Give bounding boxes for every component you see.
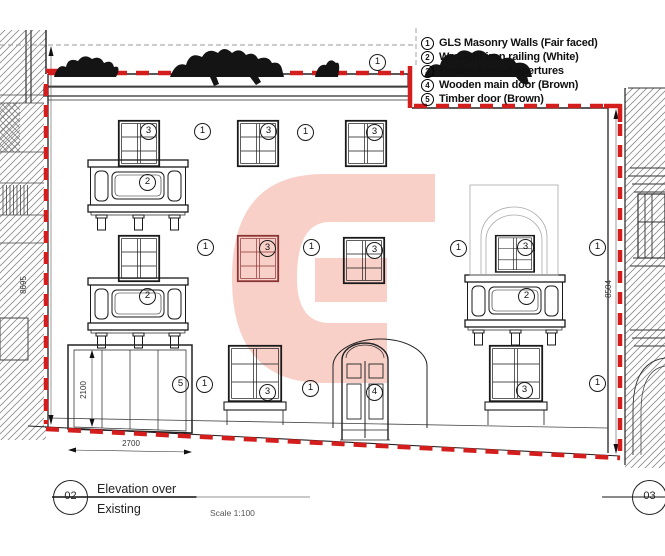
callout-marker: 1: [302, 380, 319, 397]
dimension-garage-height: 2100: [79, 381, 88, 399]
callout-marker: 1: [450, 240, 467, 257]
legend-item: 1GLS Masonry Walls (Fair faced): [421, 36, 598, 50]
callout-marker: 1: [196, 376, 213, 393]
callout-marker: 1: [589, 239, 606, 256]
title-divider: [52, 496, 310, 498]
callout-marker: 1: [589, 375, 606, 392]
legend-items: 1GLS Masonry Walls (Fair faced)2Wrought …: [421, 36, 598, 106]
callout-marker: 3: [516, 382, 533, 399]
callout-marker: 1: [297, 124, 314, 141]
callout-marker: 4: [366, 384, 383, 401]
circled-number-icon: 5: [421, 93, 434, 106]
dimension-garage-width: 2700: [122, 439, 140, 448]
legend-item: 5Timber door (Brown): [421, 92, 598, 106]
legend-label: GLS Masonry Walls (Fair faced): [439, 37, 598, 49]
dimension-right-height: 8504: [604, 280, 613, 298]
circled-number-icon: 3: [421, 65, 434, 78]
callout-marker: 3: [259, 384, 276, 401]
sheet-number-badge: 02: [53, 480, 88, 515]
neighbour-building-right: [625, 88, 665, 468]
neighbour-building-left: [0, 30, 46, 440]
dimension-left-height: 8695: [19, 276, 28, 294]
callout-marker: 3: [366, 242, 383, 259]
drawing-scale: Scale 1:100: [210, 508, 255, 518]
legend-label: Timber door (Brown): [439, 93, 544, 105]
callout-marker: 1: [197, 239, 214, 256]
callout-marker: 1: [303, 239, 320, 256]
callout-marker: 1: [369, 54, 386, 71]
callout-marker: 3: [517, 239, 534, 256]
legend-label: Wrought iron railing (White): [439, 51, 579, 63]
adjacent-sheet-badge: 03: [632, 480, 665, 515]
legend: 1GLS Masonry Walls (Fair faced)2Wrought …: [421, 36, 598, 106]
circled-number-icon: 1: [421, 37, 434, 50]
callout-marker: 2: [139, 288, 156, 305]
legend-label: Timber framed apertures: [439, 65, 564, 77]
callout-marker: 3: [259, 240, 276, 257]
drawing-title-line1: Elevation over: [97, 482, 176, 496]
legend-item: 3Timber framed apertures: [421, 64, 598, 78]
callout-marker: 2: [518, 288, 535, 305]
drawing-sheet: 8695 8504 2100 2700 1GLS M: [0, 0, 665, 556]
callout-marker: 5: [172, 376, 189, 393]
callout-marker: 2: [139, 174, 156, 191]
legend-label: Wooden main door (Brown): [439, 79, 578, 91]
legend-item: 2Wrought iron railing (White): [421, 50, 598, 64]
legend-item: 4Wooden main door (Brown): [421, 78, 598, 92]
circled-number-icon: 2: [421, 51, 434, 64]
callout-marker: 3: [366, 124, 383, 141]
callout-marker: 3: [140, 123, 157, 140]
callout-marker: 3: [260, 123, 277, 140]
callout-marker: 1: [194, 123, 211, 140]
circled-number-icon: 4: [421, 79, 434, 92]
drawing-title-line2: Existing: [97, 502, 141, 516]
